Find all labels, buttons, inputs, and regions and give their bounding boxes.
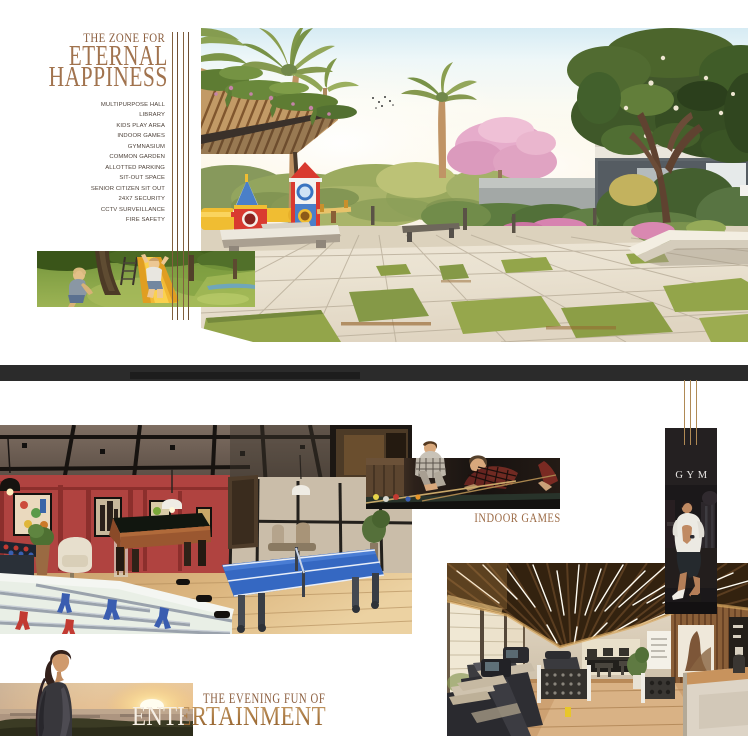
svg-text:GYM: GYM [675,470,710,481]
